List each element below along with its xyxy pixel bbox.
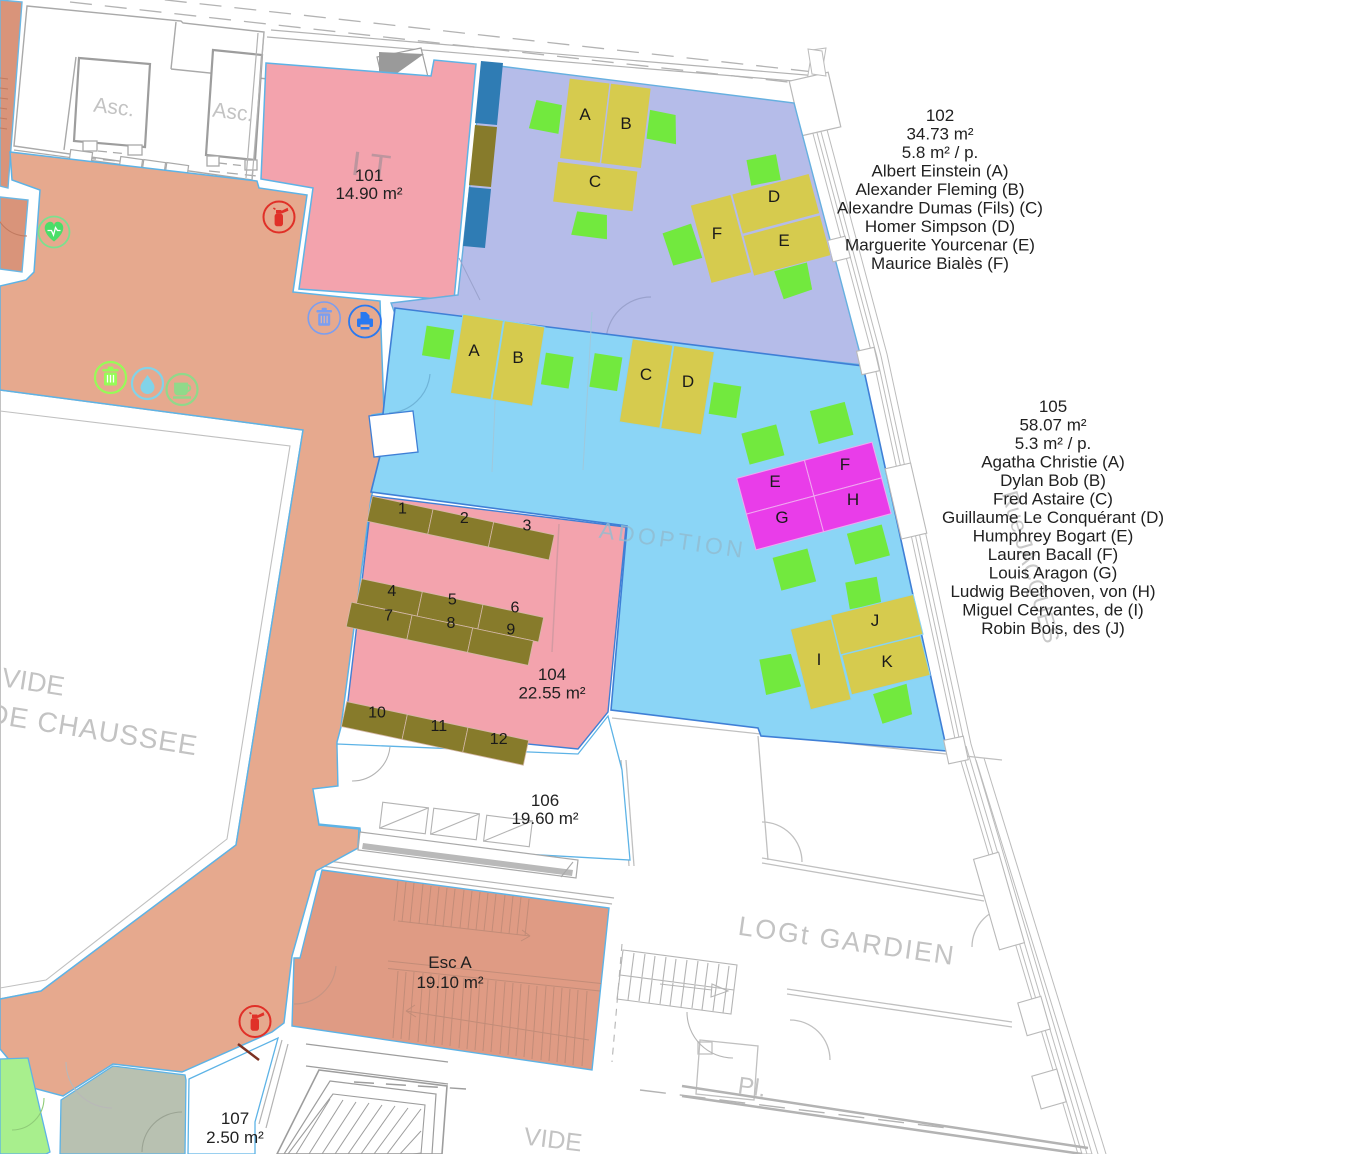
svg-text:Maurice Bialès (F): Maurice Bialès (F) <box>871 254 1009 273</box>
svg-text:Albert Einstein (A): Albert Einstein (A) <box>872 162 1009 181</box>
svg-text:2: 2 <box>460 510 469 527</box>
svg-text:10: 10 <box>368 705 386 722</box>
svg-text:58.07 m²: 58.07 m² <box>1019 416 1086 435</box>
svg-text:Pl.: Pl. <box>736 1072 768 1103</box>
svg-text:5.3 m² / p.: 5.3 m² / p. <box>1015 434 1092 453</box>
svg-text:7: 7 <box>384 608 393 625</box>
svg-text:Fred Astaire (C): Fred Astaire (C) <box>993 490 1113 509</box>
svg-text:C: C <box>640 365 652 384</box>
svg-text:E: E <box>769 472 780 491</box>
svg-text:Robin Bois, des (J): Robin Bois, des (J) <box>981 619 1125 638</box>
svg-text:34.73 m²: 34.73 m² <box>906 125 973 144</box>
svg-text:Alexandre Dumas (Fils) (C): Alexandre Dumas (Fils) (C) <box>837 199 1043 218</box>
svg-text:C: C <box>589 172 601 191</box>
svg-text:5.8 m² / p.: 5.8 m² / p. <box>902 143 979 162</box>
svg-text:2.50 m²: 2.50 m² <box>206 1128 264 1147</box>
svg-text:105: 105 <box>1039 397 1067 416</box>
svg-text:Humphrey Bogart (E): Humphrey Bogart (E) <box>973 527 1134 546</box>
svg-text:3: 3 <box>522 518 531 535</box>
svg-text:F: F <box>712 224 722 243</box>
svg-text:8: 8 <box>446 615 455 632</box>
svg-text:11: 11 <box>430 718 447 735</box>
svg-text:Marguerite Yourcenar (E): Marguerite Yourcenar (E) <box>845 236 1035 255</box>
svg-text:H: H <box>847 490 859 509</box>
svg-text:5: 5 <box>448 592 457 609</box>
svg-text:D: D <box>682 372 694 391</box>
svg-text:J: J <box>871 611 880 630</box>
svg-text:101: 101 <box>355 166 383 185</box>
svg-text:6: 6 <box>510 600 519 617</box>
svg-text:9: 9 <box>506 622 515 639</box>
svg-text:I: I <box>817 650 822 669</box>
svg-text:Agatha Christie (A): Agatha Christie (A) <box>981 453 1125 472</box>
svg-text:106: 106 <box>531 791 559 810</box>
svg-text:A: A <box>468 341 480 360</box>
svg-text:14.90 m²: 14.90 m² <box>335 184 402 203</box>
svg-text:Lauren Bacall (F): Lauren Bacall (F) <box>988 545 1118 564</box>
svg-text:Esc A: Esc A <box>428 953 472 972</box>
svg-text:E: E <box>778 231 789 250</box>
svg-text:104: 104 <box>538 665 566 684</box>
svg-text:22.55 m²: 22.55 m² <box>518 684 585 703</box>
svg-text:K: K <box>881 652 893 671</box>
svg-text:Miguel Cervantes, de (I): Miguel Cervantes, de (I) <box>962 601 1143 620</box>
svg-text:Homer Simpson (D): Homer Simpson (D) <box>865 217 1015 236</box>
svg-text:G: G <box>775 508 788 527</box>
svg-text:Louis Aragon (G): Louis Aragon (G) <box>989 564 1118 583</box>
svg-text:12: 12 <box>490 731 508 748</box>
svg-text:102: 102 <box>926 106 954 125</box>
svg-text:Dylan Bob (B): Dylan Bob (B) <box>1000 471 1106 490</box>
svg-text:B: B <box>512 348 523 367</box>
svg-text:107: 107 <box>221 1109 249 1128</box>
svg-text:A: A <box>579 105 591 124</box>
svg-text:F: F <box>840 455 850 474</box>
svg-text:Guillaume Le Conquérant (D): Guillaume Le Conquérant (D) <box>942 508 1164 527</box>
svg-text:Alexander Fleming (B): Alexander Fleming (B) <box>855 180 1024 199</box>
svg-text:1: 1 <box>398 501 407 518</box>
svg-text:Ludwig Beethoven, von (H): Ludwig Beethoven, von (H) <box>950 582 1155 601</box>
svg-text:19.60 m²: 19.60 m² <box>511 809 578 828</box>
svg-text:B: B <box>620 114 631 133</box>
svg-text:19.10 m²: 19.10 m² <box>416 973 483 992</box>
svg-text:D: D <box>768 187 780 206</box>
svg-text:4: 4 <box>387 583 396 600</box>
